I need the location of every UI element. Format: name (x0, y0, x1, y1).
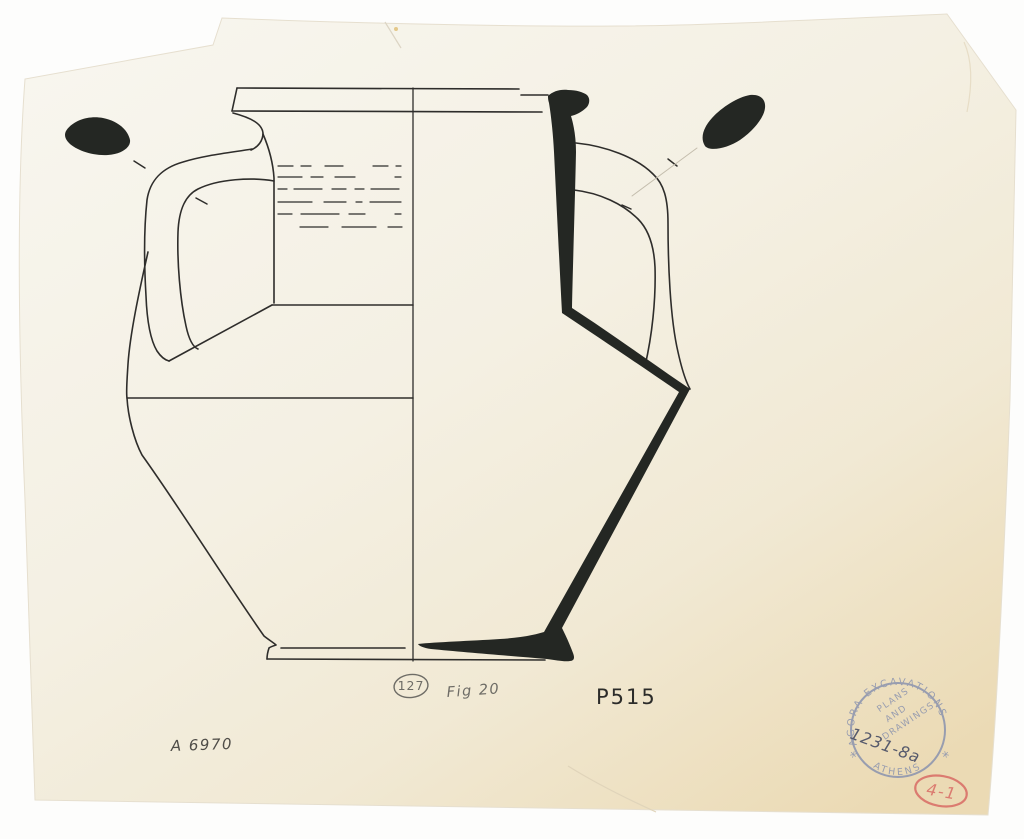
inventory-number: A 6970 (170, 735, 234, 755)
circled-number: 127 (398, 678, 425, 693)
ground-line (267, 659, 545, 660)
archaeological-drawing-svg: 127 Fig 20 A 6970 P515 AGORA EXCAVATIONS… (0, 0, 1024, 839)
rim-top-line (237, 88, 519, 89)
catalog-number: P515 (596, 685, 657, 709)
paper-speck (394, 27, 398, 31)
scanned-drawing-sheet: 127 Fig 20 A 6970 P515 AGORA EXCAVATIONS… (0, 0, 1024, 839)
rim-underside-line (232, 111, 542, 112)
